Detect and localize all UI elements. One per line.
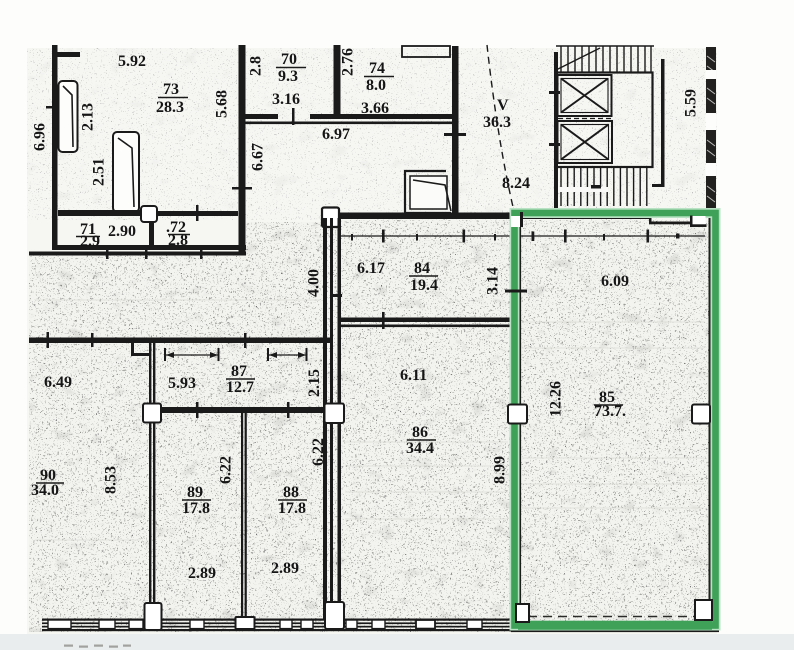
svg-text:8.24: 8.24 — [502, 175, 530, 192]
svg-text:4.00: 4.00 — [306, 269, 323, 297]
svg-text:89: 89 — [187, 484, 203, 501]
svg-text:36.3: 36.3 — [483, 114, 511, 131]
svg-text:6.11: 6.11 — [400, 367, 427, 384]
svg-text:84: 84 — [414, 260, 430, 277]
svg-text:5.92: 5.92 — [118, 53, 146, 70]
svg-text:8.99: 8.99 — [492, 456, 509, 484]
svg-text:6.22: 6.22 — [218, 456, 235, 484]
svg-text:5.68: 5.68 — [214, 90, 231, 118]
svg-text:2.89: 2.89 — [271, 560, 299, 577]
svg-text:6.96: 6.96 — [32, 123, 49, 151]
svg-text:86: 86 — [412, 424, 428, 441]
svg-text:2.51: 2.51 — [91, 158, 108, 186]
svg-text:3.14: 3.14 — [485, 267, 502, 295]
svg-text:6.49: 6.49 — [44, 374, 72, 391]
svg-text:74: 74 — [369, 60, 385, 77]
svg-text:12.7: 12.7 — [226, 379, 254, 396]
svg-text:19.4: 19.4 — [410, 277, 438, 294]
svg-text:6.22: 6.22 — [310, 438, 327, 466]
svg-text:V: V — [497, 97, 509, 114]
svg-text:87: 87 — [231, 363, 247, 380]
svg-text:2.89: 2.89 — [188, 565, 216, 582]
svg-text:17.8: 17.8 — [278, 500, 306, 517]
svg-text:5.59: 5.59 — [683, 89, 700, 117]
svg-text:12.26: 12.26 — [548, 381, 565, 417]
svg-text:3.66: 3.66 — [361, 100, 389, 117]
svg-text:2.15: 2.15 — [306, 369, 323, 397]
svg-text:2.8: 2.8 — [248, 56, 265, 76]
svg-text:6.17: 6.17 — [357, 260, 385, 277]
svg-text:34.4: 34.4 — [406, 440, 434, 457]
svg-text:9.3: 9.3 — [278, 68, 298, 85]
svg-text:3.16: 3.16 — [272, 91, 300, 108]
svg-text:17.8: 17.8 — [182, 500, 210, 517]
svg-text:6.09: 6.09 — [601, 273, 629, 290]
svg-text:6.97: 6.97 — [322, 126, 350, 143]
svg-text:5.93: 5.93 — [168, 375, 196, 392]
svg-text:28.3: 28.3 — [156, 99, 184, 116]
svg-text:34.0: 34.0 — [31, 482, 59, 499]
svg-text:8.0: 8.0 — [366, 77, 386, 94]
svg-text:2.90: 2.90 — [108, 223, 136, 240]
svg-text:6.67: 6.67 — [250, 143, 267, 171]
svg-text:2.9: 2.9 — [80, 233, 100, 250]
svg-text:88: 88 — [283, 484, 299, 501]
svg-text:2.8: 2.8 — [168, 232, 188, 249]
svg-text:73.7.: 73.7. — [594, 403, 626, 420]
svg-text:73: 73 — [163, 81, 179, 98]
svg-text:2.13: 2.13 — [80, 103, 97, 131]
svg-text:8.53: 8.53 — [103, 466, 120, 494]
svg-text:70: 70 — [281, 51, 297, 68]
svg-text:2.76: 2.76 — [340, 48, 357, 76]
